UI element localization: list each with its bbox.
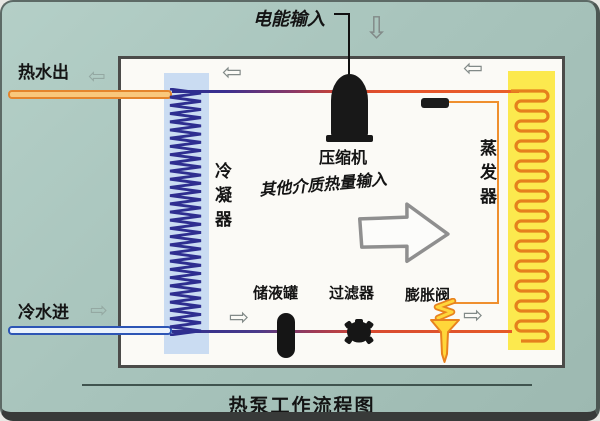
compressor-label: 压缩机 — [319, 144, 367, 168]
compressor-base — [326, 135, 373, 142]
compressor — [331, 74, 368, 137]
arrow-down-icon: ⇩ — [364, 14, 389, 44]
heat-input-arrow-icon — [351, 189, 456, 274]
capillary-tube — [449, 101, 499, 103]
evaporator-label: 蒸发器 — [474, 139, 499, 211]
sensing-bulb — [421, 98, 449, 108]
arrow-right-icon: ⇨ — [229, 305, 249, 329]
electric-wire-vertical — [348, 13, 350, 76]
receiver-tank-label: 储液罐 — [253, 282, 298, 303]
filter — [343, 318, 375, 348]
heat-pump-diagram: 电能输入 ⇩ 热水出 ⇦ 冷水进 ⇨ 冷凝器 蒸发器 ⇦ ⇦ ⇨ ⇨ 压缩机 其… — [0, 0, 600, 421]
arrow-left-icon: ⇦ — [88, 66, 106, 87]
arrow-left-icon: ⇦ — [463, 56, 483, 80]
condenser-coil — [168, 88, 204, 336]
filter-label: 过滤器 — [329, 282, 374, 303]
evaporator-coil — [511, 86, 553, 346]
expansion-valve — [428, 298, 464, 366]
arrow-right-icon: ⇨ — [463, 303, 483, 327]
hot-water-pipe — [8, 90, 172, 99]
electric-input-label: 电能输入 — [253, 5, 325, 31]
hot-water-out-label: 热水出 — [18, 58, 69, 83]
arrow-left-icon: ⇦ — [222, 60, 242, 84]
diagram-title: 热泵工作流程图 — [2, 391, 600, 418]
arrow-right-icon: ⇨ — [90, 300, 108, 321]
receiver-tank — [277, 313, 295, 358]
cold-water-in-label: 冷水进 — [18, 298, 69, 323]
caption-divider — [82, 384, 532, 386]
condenser-label: 冷凝器 — [209, 162, 234, 234]
cold-water-pipe — [8, 326, 172, 335]
